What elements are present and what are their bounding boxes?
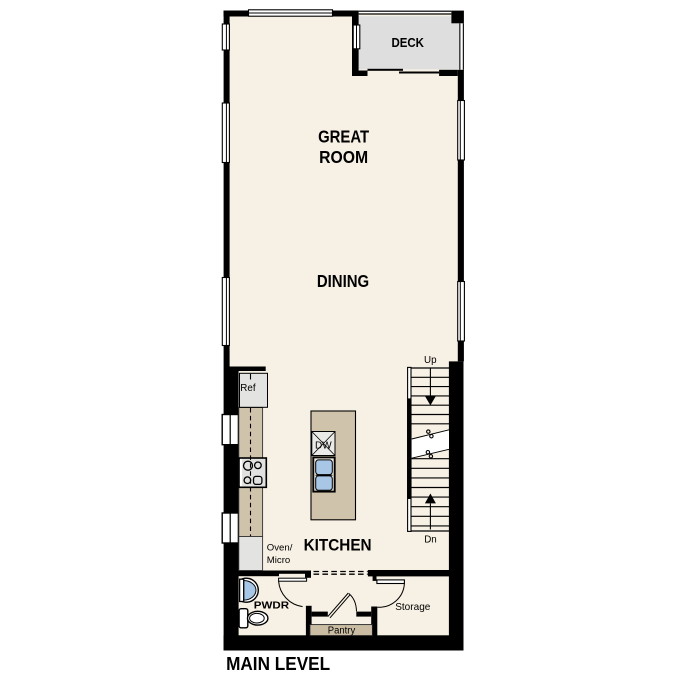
svg-text:Oven/: Oven/ [267, 542, 293, 553]
svg-text:Dn: Dn [424, 534, 437, 545]
svg-text:Micro: Micro [267, 555, 290, 566]
svg-text:Up: Up [424, 355, 437, 366]
svg-text:KITCHEN: KITCHEN [304, 536, 372, 555]
svg-text:ROOM: ROOM [319, 147, 368, 167]
svg-text:DW: DW [315, 440, 332, 451]
svg-text:PWDR: PWDR [254, 599, 290, 611]
svg-text:DINING: DINING [317, 271, 369, 291]
svg-text:Pantry: Pantry [328, 626, 355, 637]
svg-text:Ref: Ref [240, 383, 256, 394]
svg-text:DECK: DECK [391, 35, 424, 50]
svg-text:GREAT: GREAT [318, 127, 369, 147]
svg-text:MAIN LEVEL: MAIN LEVEL [226, 653, 330, 674]
svg-text:Storage: Storage [395, 601, 430, 613]
